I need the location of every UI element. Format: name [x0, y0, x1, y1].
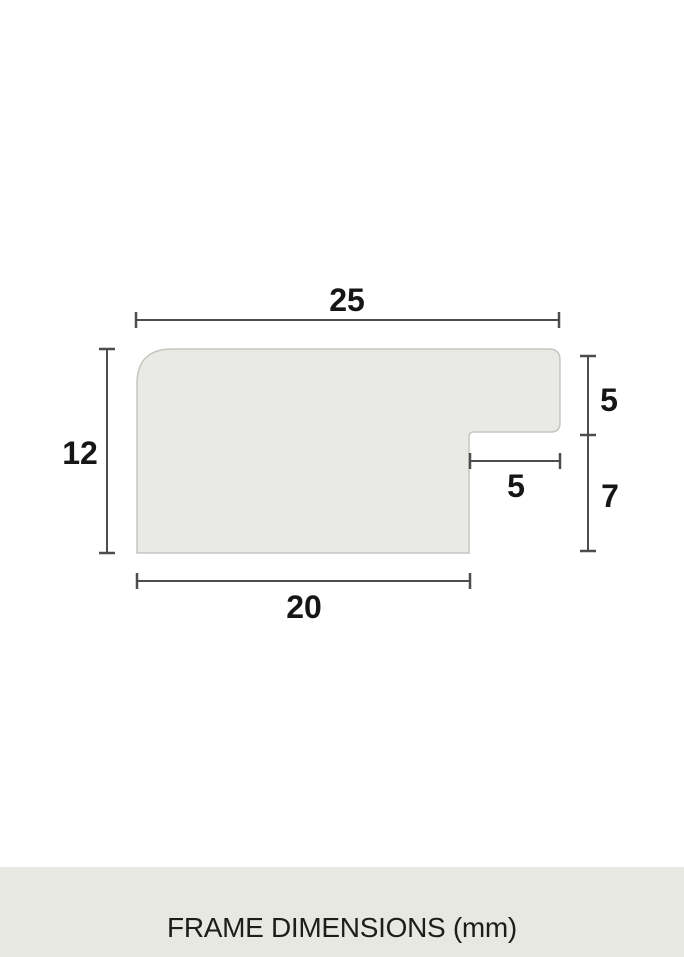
dimension-top-width: 25 [136, 282, 559, 328]
dimension-label-bottom-width: 20 [286, 589, 322, 625]
dimension-right-heights: 5 7 [580, 356, 619, 551]
dimension-label-rabbet-width: 5 [507, 468, 525, 504]
dimension-rabbet-width: 5 [470, 453, 560, 504]
dimension-label-left-height: 12 [62, 435, 98, 471]
dimension-bottom-width: 20 [137, 573, 470, 625]
frame-dimensions-page: 25 12 5 7 5 20 [0, 0, 684, 957]
dimension-label-top-width: 25 [329, 282, 365, 318]
frame-profile-shape [137, 349, 560, 553]
profile-diagram-canvas: 25 12 5 7 5 20 [0, 0, 684, 867]
footer-title: FRAME DIMENSIONS (mm) [167, 914, 517, 942]
dimension-left-height: 12 [62, 349, 115, 553]
dimension-label-right-upper: 5 [600, 382, 618, 418]
dimension-label-right-lower: 7 [601, 478, 619, 514]
footer-bar: FRAME DIMENSIONS (mm) [0, 867, 684, 957]
